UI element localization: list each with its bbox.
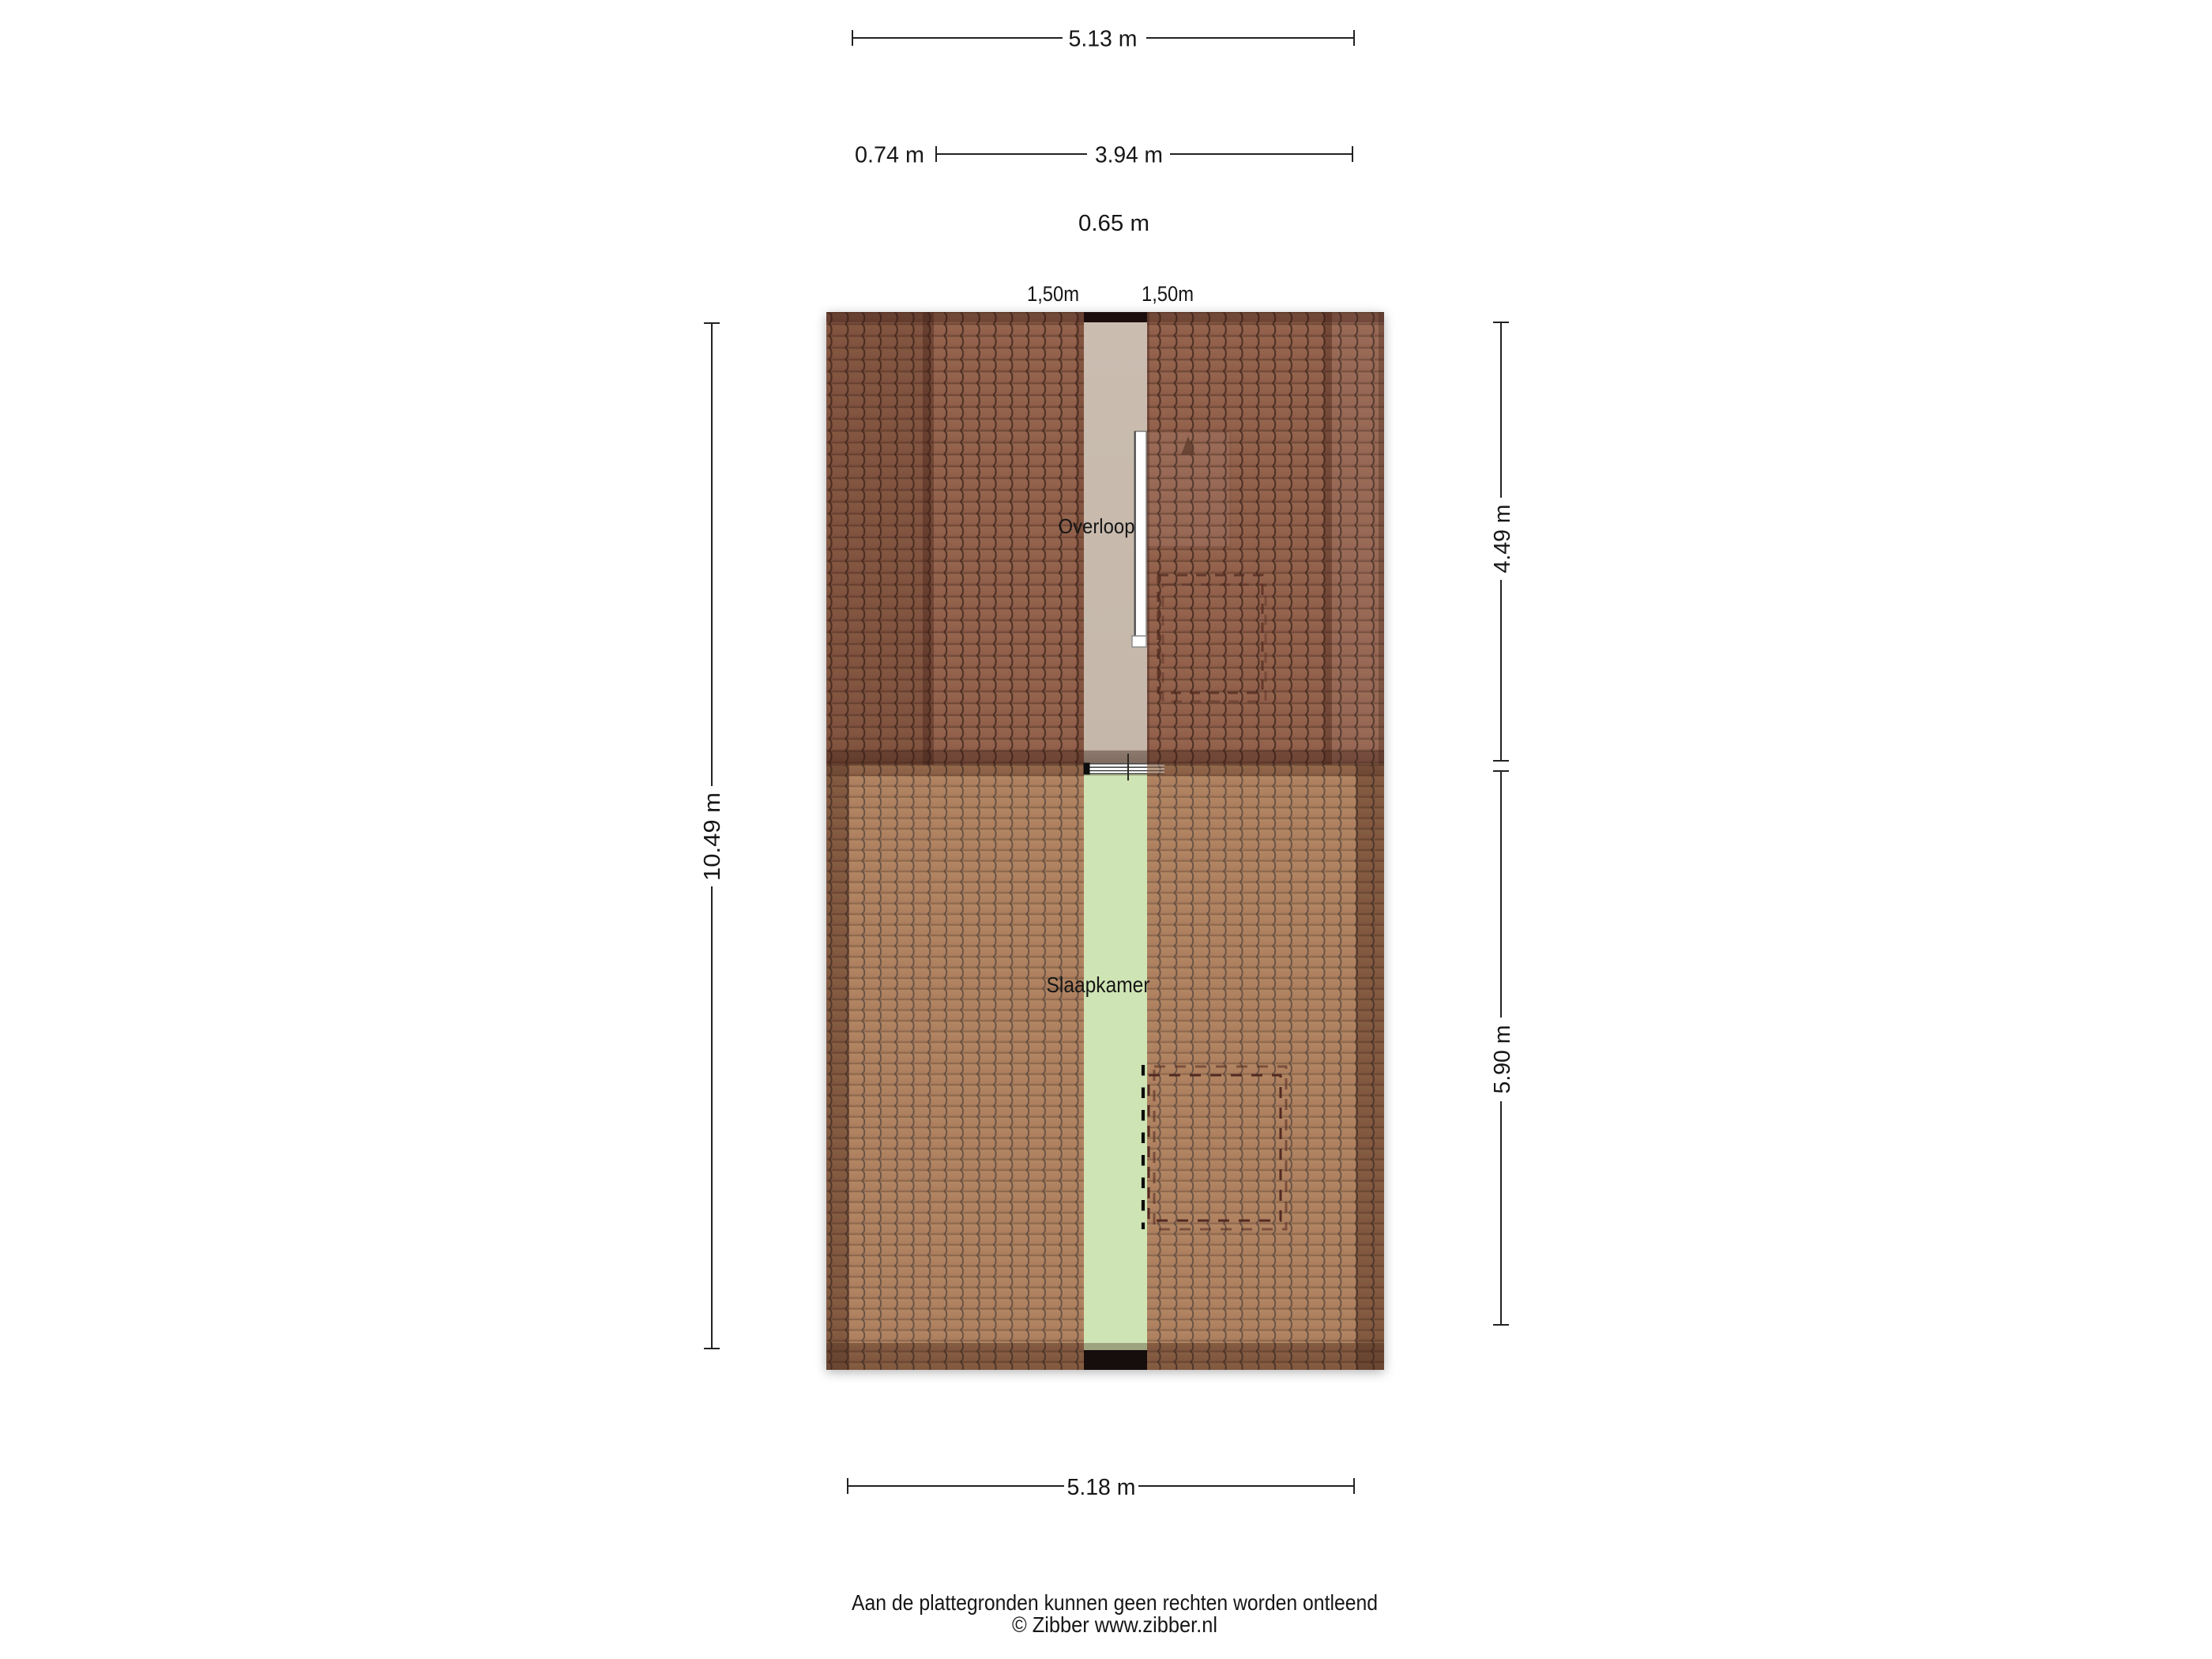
svg-text:Slaapkamer: Slaapkamer xyxy=(1047,972,1150,997)
svg-text:1,50m: 1,50m xyxy=(1142,282,1194,306)
svg-text:3.94 m: 3.94 m xyxy=(1095,143,1163,168)
svg-text:5.90 m: 5.90 m xyxy=(1490,1025,1515,1094)
svg-text:© Zibber www.zibber.nl: © Zibber www.zibber.nl xyxy=(1012,1612,1217,1637)
svg-text:1,50m: 1,50m xyxy=(1027,282,1079,306)
svg-text:Overloop: Overloop xyxy=(1059,514,1135,538)
svg-text:5.18 m: 5.18 m xyxy=(1067,1475,1136,1500)
svg-text:Aan de plattegronden kunnen ge: Aan de plattegronden kunnen geen rechten… xyxy=(852,1590,1378,1615)
svg-text:4.49 m: 4.49 m xyxy=(1490,505,1515,574)
svg-text:0.65 m: 0.65 m xyxy=(1078,211,1149,236)
svg-text:5.13 m: 5.13 m xyxy=(1069,27,1138,52)
svg-text:10.49 m: 10.49 m xyxy=(700,792,725,881)
svg-text:0.74 m: 0.74 m xyxy=(855,143,924,168)
